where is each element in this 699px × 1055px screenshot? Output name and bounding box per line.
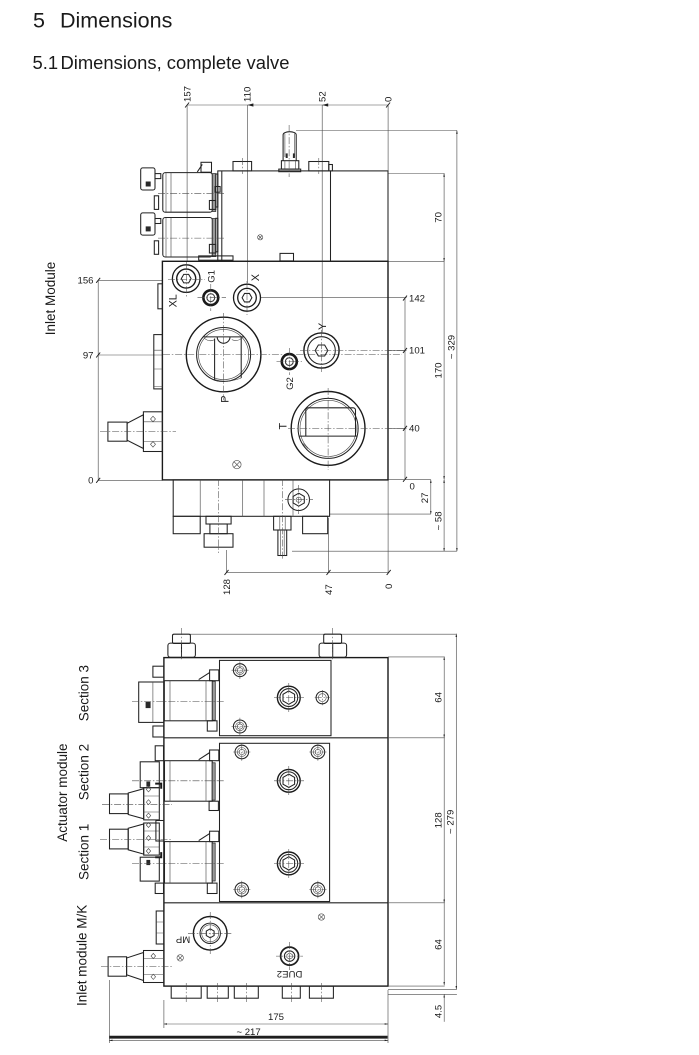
- svg-text:47: 47: [324, 584, 335, 595]
- svg-text:Section 2: Section 2: [77, 744, 92, 800]
- svg-text:52: 52: [318, 91, 329, 102]
- svg-text:40: 40: [409, 424, 420, 435]
- svg-text:4.5: 4.5: [433, 1005, 444, 1018]
- svg-text:170: 170: [433, 362, 444, 378]
- svg-text:~ 217: ~ 217: [236, 1027, 260, 1038]
- svg-text:Dimensions, complete valve: Dimensions, complete valve: [61, 52, 290, 73]
- svg-text:T: T: [277, 423, 289, 430]
- svg-text:27: 27: [420, 493, 431, 504]
- svg-text:5.1: 5.1: [33, 52, 59, 73]
- svg-text:Inlet Module: Inlet Module: [43, 262, 58, 336]
- svg-text:Section 3: Section 3: [77, 665, 92, 721]
- svg-text:0: 0: [88, 476, 93, 487]
- svg-text:0: 0: [383, 97, 394, 102]
- svg-text:97: 97: [83, 350, 94, 361]
- svg-text:0: 0: [410, 482, 415, 493]
- svg-text:Actuator module: Actuator module: [55, 743, 70, 841]
- svg-text:64: 64: [433, 939, 444, 950]
- svg-text:Section 1: Section 1: [77, 824, 92, 880]
- svg-text:128: 128: [222, 579, 233, 595]
- svg-text:5: 5: [33, 9, 45, 33]
- svg-text:156: 156: [77, 276, 93, 287]
- svg-text:70: 70: [433, 212, 444, 223]
- svg-text:Dimensions: Dimensions: [60, 9, 172, 33]
- svg-text:175: 175: [268, 1012, 284, 1023]
- svg-text:0: 0: [384, 584, 395, 589]
- svg-text:G2: G2: [285, 377, 296, 390]
- svg-text:XL: XL: [168, 294, 180, 307]
- svg-text:110: 110: [243, 87, 254, 102]
- svg-text:~ 329: ~ 329: [446, 335, 457, 359]
- svg-text:~ 58: ~ 58: [433, 511, 444, 530]
- svg-text:G1: G1: [207, 270, 218, 283]
- svg-text:~ 279: ~ 279: [446, 810, 457, 834]
- svg-text:101: 101: [409, 346, 425, 357]
- svg-text:Y: Y: [317, 323, 329, 330]
- svg-text:64: 64: [433, 691, 444, 702]
- svg-text:128: 128: [433, 812, 444, 828]
- svg-text:157: 157: [182, 86, 193, 102]
- svg-text:X: X: [250, 274, 262, 281]
- svg-text:MP: MP: [176, 934, 190, 945]
- svg-text:142: 142: [409, 293, 425, 304]
- svg-text:Inlet module M/K: Inlet module M/K: [75, 905, 90, 1006]
- svg-text:P: P: [219, 396, 231, 403]
